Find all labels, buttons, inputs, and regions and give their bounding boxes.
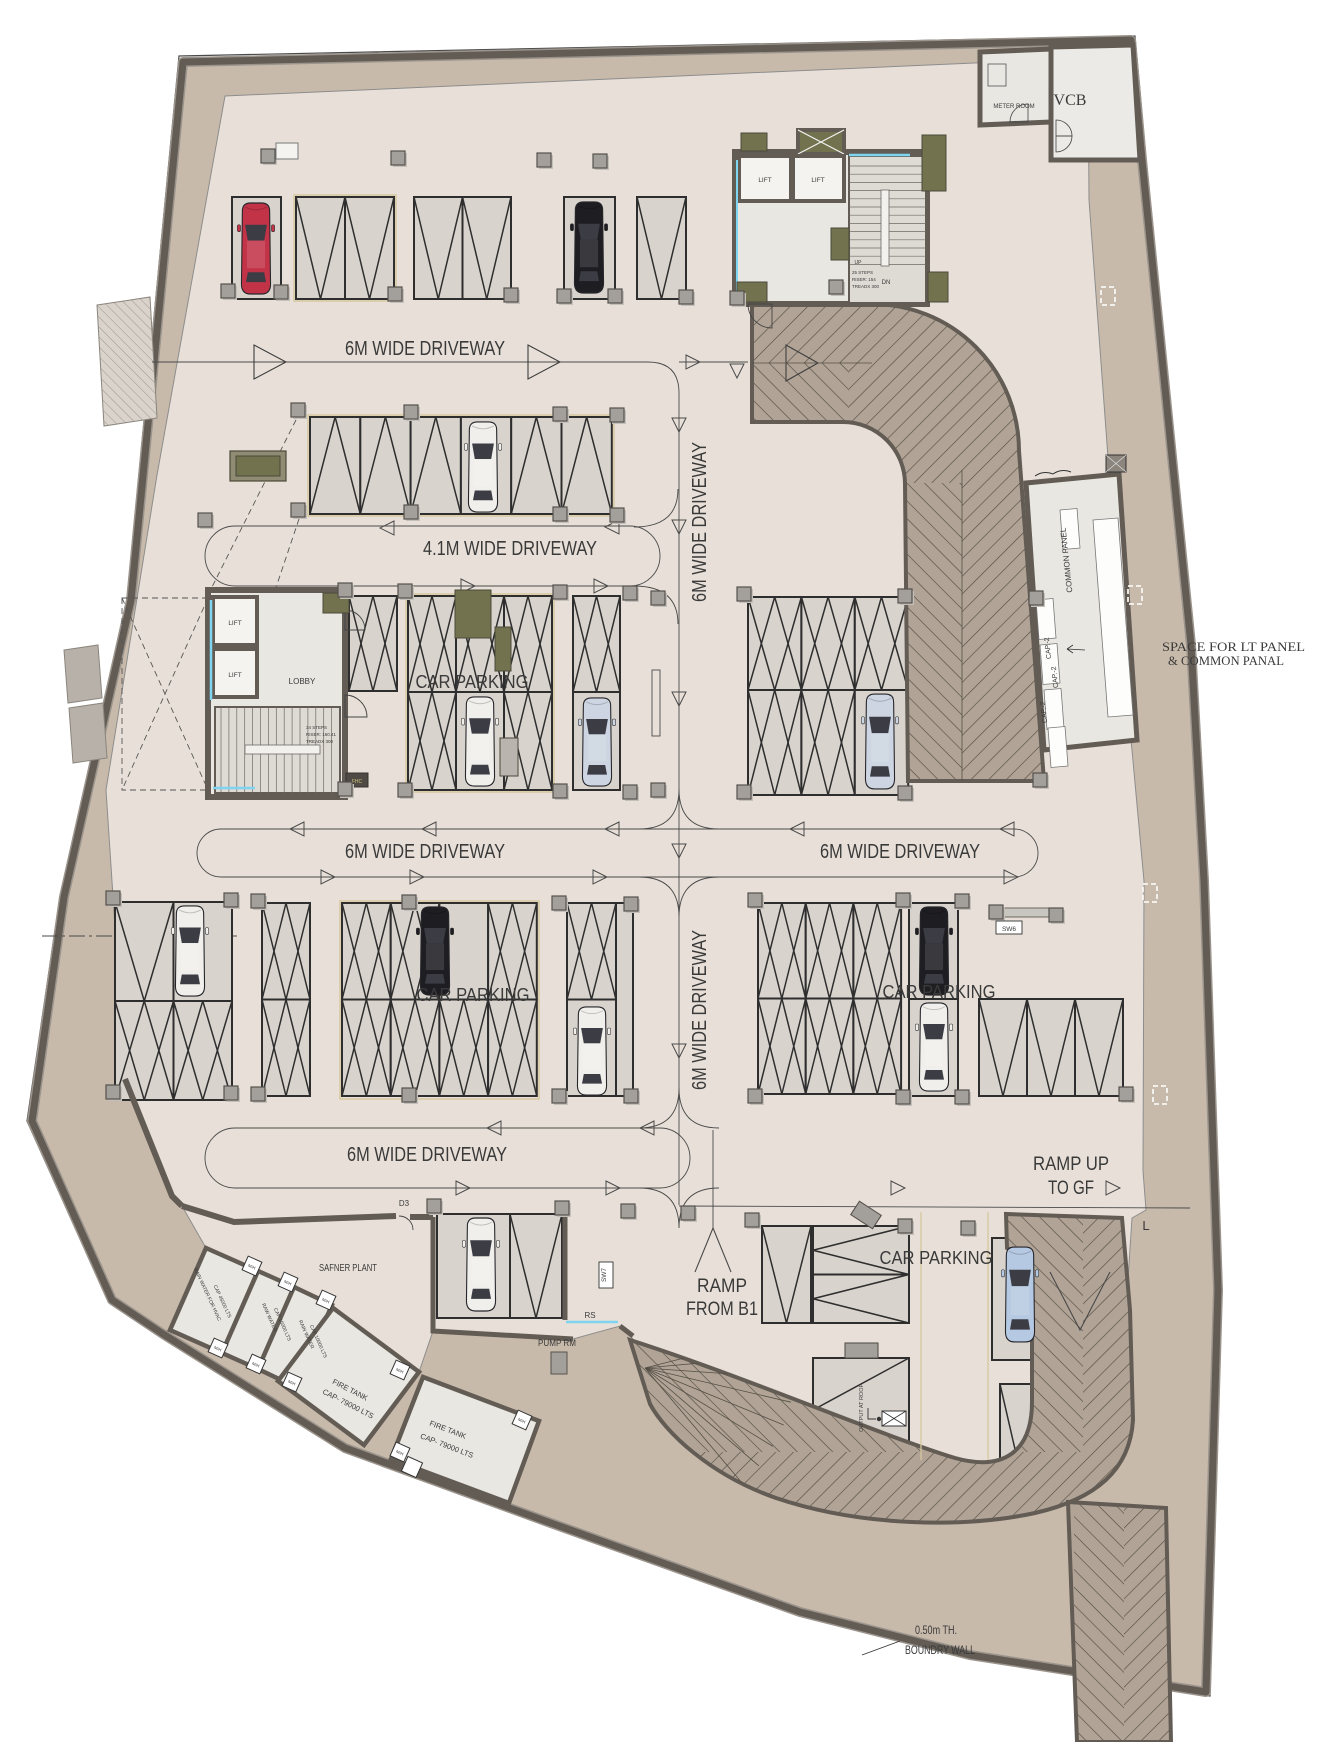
svg-text:RAMP: RAMP: [697, 1276, 747, 1297]
svg-text:TREADX 300: TREADX 300: [852, 284, 880, 289]
svg-text:CAR PARKING: CAR PARKING: [416, 672, 529, 692]
svg-text:6M WIDE DRIVEWAY: 6M WIDE DRIVEWAY: [345, 841, 505, 863]
svg-text:CAR PARKING: CAR PARKING: [417, 985, 530, 1005]
svg-text:METER ROOM: METER ROOM: [993, 104, 1034, 110]
svg-text:LIFT: LIFT: [228, 672, 241, 679]
svg-text:LIFT: LIFT: [758, 177, 771, 184]
svg-text:SW7: SW7: [601, 1268, 608, 1282]
svg-text:LOBBY: LOBBY: [289, 677, 316, 686]
svg-text:VCB: VCB: [1054, 92, 1087, 109]
svg-text:FROM B1: FROM B1: [686, 1299, 758, 1320]
svg-text:RISER: 160.41: RISER: 160.41: [306, 732, 337, 737]
svg-text:6M WIDE DRIVEWAY: 6M WIDE DRIVEWAY: [689, 930, 711, 1090]
svg-text:D3: D3: [399, 1199, 410, 1208]
svg-text:6M WIDE DRIVEWAY: 6M WIDE DRIVEWAY: [689, 442, 711, 602]
svg-text:DN: DN: [882, 280, 891, 286]
svg-text:34 STEPS: 34 STEPS: [306, 725, 327, 730]
svg-text:L: L: [1142, 1218, 1149, 1233]
svg-text:25 STEPS: 25 STEPS: [852, 270, 873, 275]
svg-text:RAMP UP: RAMP UP: [1033, 1154, 1109, 1175]
svg-text:RISER: 154: RISER: 154: [852, 277, 876, 282]
svg-text:PUMP RM: PUMP RM: [538, 1338, 576, 1348]
svg-text:6M WIDE DRIVEWAY: 6M WIDE DRIVEWAY: [345, 338, 505, 360]
svg-text:BOUNDRY WALL: BOUNDRY WALL: [905, 1643, 975, 1657]
svg-text:6M WIDE DRIVEWAY: 6M WIDE DRIVEWAY: [820, 841, 980, 863]
svg-text:LIFT: LIFT: [811, 177, 824, 184]
svg-text:OUTPUT AT ROOF: OUTPUT AT ROOF: [859, 1384, 865, 1432]
svg-text:& COMMON PANAL: & COMMON PANAL: [1168, 653, 1284, 668]
svg-text:CAR PARKING: CAR PARKING: [883, 982, 996, 1002]
svg-text:TO GF: TO GF: [1048, 1178, 1094, 1199]
svg-text:TREADX 300: TREADX 300: [306, 739, 334, 744]
svg-text:4.1M WIDE DRIVEWAY: 4.1M WIDE DRIVEWAY: [423, 538, 597, 560]
svg-text:UP: UP: [855, 260, 863, 266]
svg-text:6M WIDE DRIVEWAY: 6M WIDE DRIVEWAY: [347, 1144, 507, 1166]
svg-text:SW6: SW6: [1002, 926, 1016, 933]
svg-text:RS: RS: [584, 1311, 595, 1320]
svg-text:SAFNER PLANT: SAFNER PLANT: [319, 1263, 377, 1274]
svg-text:SPACE FOR LT PANEL: SPACE FOR LT PANEL: [1162, 639, 1305, 654]
svg-text:CAR PARKING: CAR PARKING: [880, 1248, 993, 1268]
svg-text:LIFT: LIFT: [228, 620, 241, 627]
svg-text:0.50m TH.: 0.50m TH.: [915, 1623, 957, 1637]
